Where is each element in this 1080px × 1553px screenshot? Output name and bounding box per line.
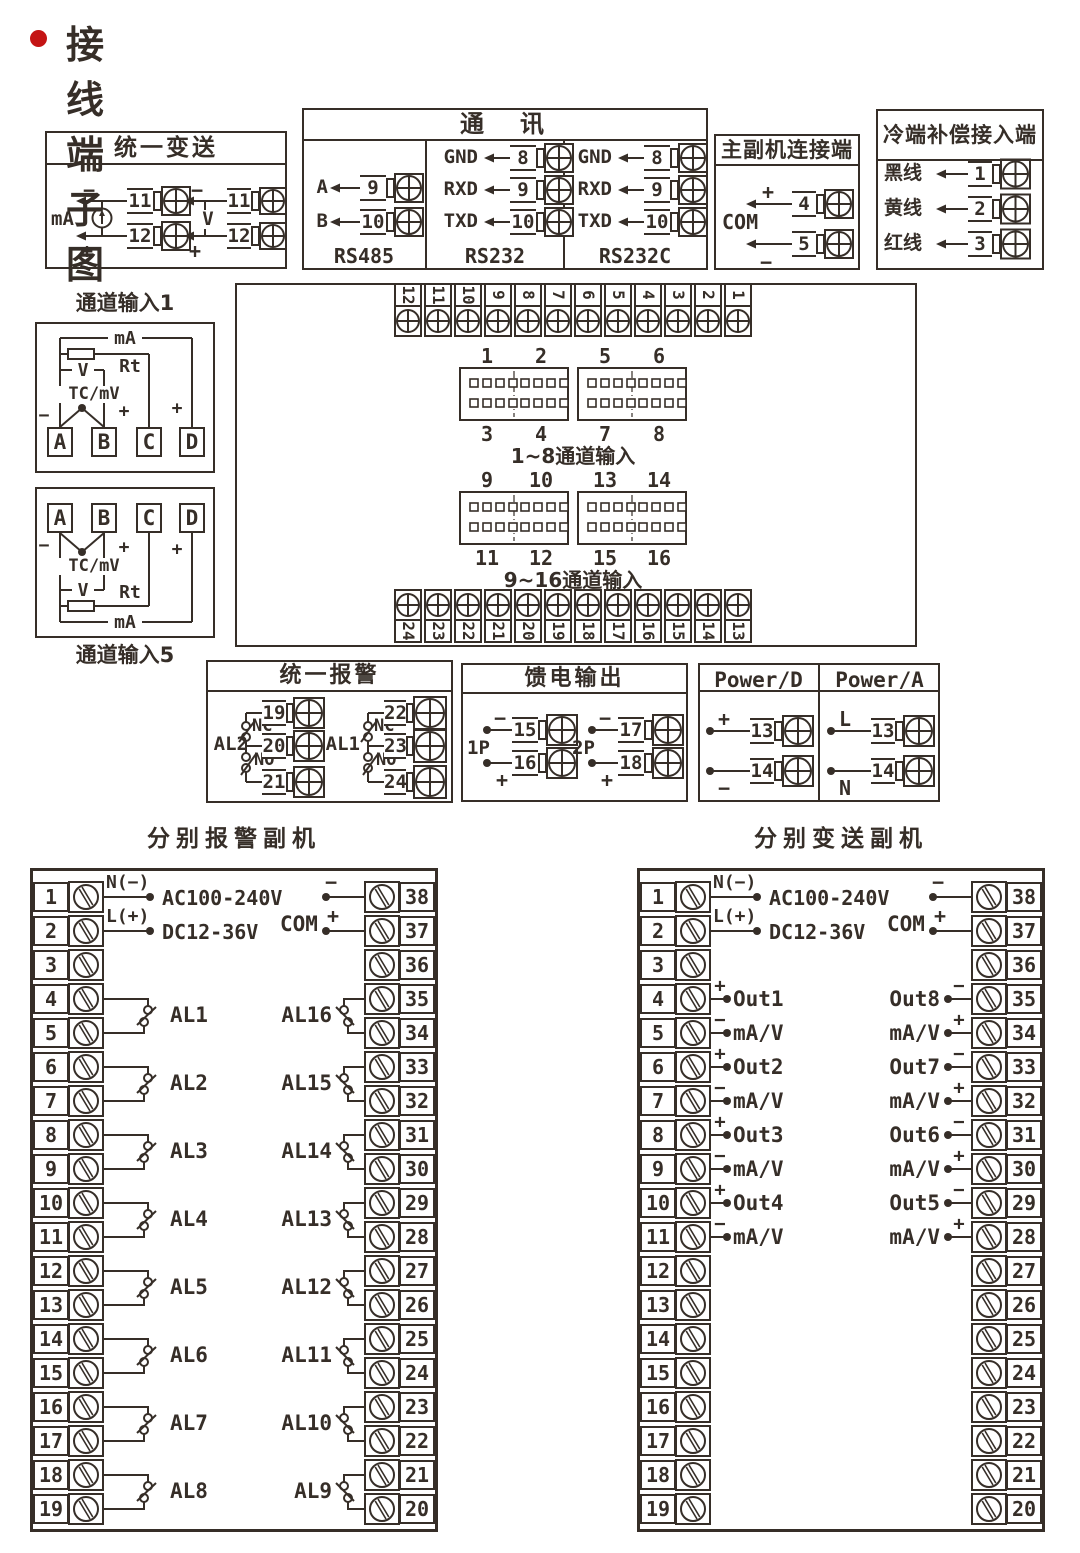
polarity-sign: − [950,1045,968,1064]
terminal-clamp [386,212,395,232]
supply-label: L(+) [713,908,771,926]
signal-label: V [72,582,94,600]
supply-rating: DC12-36V [769,922,865,942]
terminal-number: 15 [512,717,538,743]
polarity-sign: − [36,407,52,425]
terminal-number: 8 [517,282,539,308]
terminal-clamp [644,720,653,740]
signal-label: Rt [114,358,146,376]
terminal-number: 6 [577,282,599,308]
polarity-sign: − [711,1215,729,1234]
section-title: Power/A [819,670,940,691]
terminal-number: 25 [399,1324,435,1354]
output-label: Out4 [733,1193,807,1214]
output-label: Out8 [866,989,940,1010]
polarity-sign: − [80,180,98,200]
connector-number: 12 [514,548,568,568]
terminal-number: 20 [1006,1494,1042,1524]
terminal-number: A [47,427,73,457]
output-label: mA/V [866,1023,940,1044]
terminal-number: 34 [399,1018,435,1048]
terminal-number: 23 [427,618,449,644]
terminal-number: 10 [640,1188,676,1218]
relay-label: AL7 [170,1413,234,1434]
terminal-number: 2 [697,282,719,308]
terminal-number: 19 [640,1494,676,1524]
connector-number: 15 [578,548,632,568]
panel-title: 分别报警副机 [30,828,438,851]
polarity-sign: − [950,1113,968,1132]
terminal-number: 13 [33,1290,69,1320]
relay-label: AL10 [258,1413,332,1434]
terminal-number: 8 [644,145,670,171]
relay-label: AL5 [170,1277,234,1298]
terminal-number: 8 [33,1120,69,1150]
terminal-number: 2 [33,916,69,946]
terminal-number: 33 [399,1052,435,1082]
relay-label: AL13 [258,1209,332,1230]
polarity-sign: + [186,241,204,261]
terminal-clamp [774,761,783,781]
terminal-number: 13 [750,718,774,744]
terminal-number: 7 [547,282,569,308]
output-label: Out2 [733,1057,807,1078]
terminal-number: 18 [33,1460,69,1490]
terminal-number: 18 [618,750,644,776]
terminal-number: 10 [33,1188,69,1218]
polarity-sign: − [711,1147,729,1166]
section-title: 主副机连接端 [716,136,858,166]
terminal-number: 12 [227,223,251,249]
terminal-clamp [286,736,294,756]
terminal-number: 9 [360,175,386,201]
polarity-sign: − [36,537,52,555]
terminal-number: 1 [968,161,992,187]
terminal-number: 20 [262,733,286,759]
connector-number: 10 [514,470,568,490]
terminal-number: 3 [667,282,689,308]
terminal-number: 11 [427,282,449,308]
supply-rating: DC12-36V [162,922,258,942]
polarity-sign: + [950,1147,968,1166]
output-label: mA/V [866,1091,940,1112]
group-caption: 1~8通道输入 [390,446,756,466]
terminal-number: 10 [644,209,670,235]
polarity-sign: + [931,906,949,926]
polarity-sign: + [78,241,96,261]
supply-label: N(−) [713,874,771,892]
terminal-number: 7 [640,1086,676,1116]
polarity-sign: − [711,1011,729,1030]
terminal-number: 3 [640,950,676,980]
terminal-number: 4 [637,282,659,308]
polarity-sign: − [929,872,947,892]
connector-number: 8 [632,424,686,444]
wire-color-label: 黄线 [884,199,928,218]
terminal-number: 9 [640,1154,676,1184]
column-footer: RS485 [302,246,426,266]
terminal-clamp [536,148,545,168]
column-footer: RS232C [564,246,706,266]
output-label: mA/V [733,1091,807,1112]
connector-number: 3 [460,424,514,444]
group-caption: 9~16通道输入 [390,570,756,590]
polarity-sign: + [169,400,185,418]
signal-label: V [198,210,218,229]
terminal-number: 5 [607,282,629,308]
group-label: 1P [467,739,495,758]
polarity-sign: + [711,1113,729,1132]
terminal-number: 12 [127,223,153,249]
transmit_slave-panel [637,868,1045,1532]
terminal-clamp [406,736,414,756]
polarity-sign: + [950,1079,968,1098]
terminal-number: 30 [399,1154,435,1184]
polarity-sign: − [715,778,733,798]
output-label: mA/V [733,1023,807,1044]
signal-label: A [310,178,328,197]
terminal-number: 14 [750,758,774,784]
terminal-number: 16 [512,750,538,776]
section-title: 馈电输出 [463,665,686,694]
wiring-terminal-diagram: 接线端子图 统一变送−+mA1112−+V1112通 讯A9B10RS485GN… [0,0,1080,1553]
terminal-number: 18 [577,618,599,644]
terminal-clamp [992,199,1001,219]
output-label: Out3 [733,1125,807,1146]
terminal-number: 21 [487,618,509,644]
terminal-number: 8 [640,1120,676,1150]
terminal-clamp [644,753,653,773]
terminal-number: 14 [871,758,895,784]
polarity-sign: + [711,977,729,996]
relay-label: AL16 [258,1005,332,1026]
terminal-number: 36 [399,950,435,980]
terminal-number: D [179,427,205,457]
polarity-sign: − [950,977,968,996]
terminal-number: B [91,427,117,457]
connector-number: 7 [578,424,632,444]
polarity-sign: + [950,1011,968,1030]
terminal-number: 6 [640,1052,676,1082]
terminal-clamp [895,721,904,741]
terminal-number: 11 [227,188,251,214]
terminal-number: 21 [262,769,286,795]
terminal-number: 5 [792,231,816,257]
terminal-number: 11 [127,188,153,214]
terminal-clamp [153,191,162,211]
connector-number: 1 [460,346,514,366]
terminal-number: 16 [33,1392,69,1422]
polarity-sign: N [836,778,854,798]
polarity-sign: − [491,708,509,728]
signal-label: mA [108,330,142,348]
terminal-clamp [816,194,825,214]
master-slave-box: 主副机连接端 [714,134,860,270]
terminal-number: 31 [399,1120,435,1150]
terminal-number: 22 [457,618,479,644]
terminal-clamp [406,703,414,723]
terminal-number: 19 [33,1494,69,1524]
terminal-number: 22 [384,700,406,726]
polarity-sign: − [758,252,774,272]
polarity-sign: L [836,709,854,729]
connector-number: 14 [632,470,686,490]
output-label: Out6 [866,1125,940,1146]
terminal-clamp [153,226,162,246]
terminal-clamp [992,234,1001,254]
terminal-number: 19 [262,700,286,726]
signal-label: B [310,212,328,231]
terminal-number: 14 [640,1324,676,1354]
terminal-clamp [538,753,547,773]
terminal-clamp [536,180,545,200]
section-title: Power/D [698,670,819,691]
terminal-number: 38 [399,882,435,912]
terminal-number: 23 [384,733,406,759]
terminal-number: 8 [510,145,536,171]
terminal-number: 30 [1006,1154,1042,1184]
output-label: mA/V [733,1159,807,1180]
polarity-sign: − [322,872,340,892]
signal-label: GND [566,148,612,167]
terminal-number: 11 [640,1222,676,1252]
terminal-number: 29 [399,1188,435,1218]
terminal-number: 10 [360,209,386,235]
connector-number: 13 [578,470,632,490]
connector-number: 4 [514,424,568,444]
terminal-number: 37 [1006,916,1042,946]
supply-label: N(−) [106,874,164,892]
unified-alarm-box: 统一报警 [206,660,453,803]
terminal-clamp [286,772,294,792]
output-label: Out1 [733,989,807,1010]
terminal-number: 17 [640,1426,676,1456]
polarity-sign: + [116,539,132,557]
terminal-number: 32 [399,1086,435,1116]
polarity-sign: + [760,182,776,202]
terminal-number: 28 [399,1222,435,1252]
terminal-number: 7 [33,1086,69,1116]
polarity-sign: − [188,180,206,200]
terminal-number: 15 [667,618,689,644]
group-label: 2P [572,739,600,758]
output-label: mA/V [866,1159,940,1180]
terminal-number: 5 [640,1018,676,1048]
relay-label: AL15 [258,1073,332,1094]
terminal-number: 11 [33,1222,69,1252]
terminal-number: 27 [1006,1256,1042,1286]
terminal-number: 27 [399,1256,435,1286]
polarity-sign: + [711,1181,729,1200]
terminal-number: 25 [1006,1324,1042,1354]
terminal-number: D [179,503,205,533]
terminal-number: A [47,503,73,533]
relay-label: AL6 [170,1345,234,1366]
terminal-number: 1 [33,882,69,912]
polarity-sign: + [715,709,733,729]
polarity-sign: + [950,1215,968,1234]
terminal-number: B [91,503,117,533]
terminal-clamp [406,772,414,792]
terminal-number: 2 [968,196,992,222]
terminal-number: 9 [33,1154,69,1184]
terminal-number: 18 [640,1460,676,1490]
column-footer: RS232 [426,246,564,266]
terminal-number: 4 [792,191,816,217]
terminal-number: 10 [457,282,479,308]
relay-label: AL14 [258,1141,332,1162]
relay-label: AL8 [170,1481,234,1502]
terminal-number: 1 [640,882,676,912]
signal-label: mA [51,210,74,229]
terminal-clamp [286,703,294,723]
terminal-number: 36 [1006,950,1042,980]
terminal-number: 1 [727,282,749,308]
terminal-number: 24 [1006,1358,1042,1388]
terminal-number: 19 [547,618,569,644]
terminal-number: 35 [399,984,435,1014]
terminal-number: 38 [1006,882,1042,912]
terminal-clamp [670,180,679,200]
relay-label: AL2 [170,1073,234,1094]
terminal-number: 2 [640,916,676,946]
signal-label: TXD [432,212,478,231]
terminal-clamp [538,720,547,740]
signal-label: RXD [432,180,478,199]
output-label: Out5 [866,1193,940,1214]
section-title: 统一报警 [208,662,451,692]
red-bullet-icon [30,30,47,47]
terminal-number: C [136,427,162,457]
wire-color-label: 黑线 [884,164,928,183]
output-label: mA/V [866,1227,940,1248]
terminal-number: 12 [33,1256,69,1286]
terminal-number: 13 [640,1290,676,1320]
signal-label: COM [722,212,766,232]
connector-number: 11 [460,548,514,568]
signal-label: V [72,362,94,380]
alarm_slave-panel [30,868,438,1532]
terminal-number: 13 [727,618,749,644]
terminal-clamp [670,148,679,168]
supply-rating: AC100-240V [162,888,282,908]
terminal-number: 17 [618,717,644,743]
relay-label: AL9 [258,1481,332,1502]
signal-label: mA [108,614,142,632]
terminal-number: 24 [397,618,419,644]
signal-label: RXD [566,180,612,199]
terminal-number: 15 [33,1358,69,1388]
terminal-number: 20 [399,1494,435,1524]
terminal-number: 13 [871,718,895,744]
terminal-number: 17 [33,1426,69,1456]
terminal-number: 3 [968,231,992,257]
terminal-number: 10 [510,209,536,235]
terminal-number: 6 [33,1052,69,1082]
terminal-number: 9 [510,177,536,203]
terminal-clamp [251,226,260,246]
terminal-number: 33 [1006,1052,1042,1082]
relay-label: AL11 [258,1345,332,1366]
output-label: Out7 [866,1057,940,1078]
section-caption: 通道输入5 [35,645,215,666]
terminal-number: 37 [399,916,435,946]
terminal-clamp [386,178,395,198]
terminal-number: 9 [644,177,670,203]
terminal-number: 26 [1006,1290,1042,1320]
polarity-sign: + [598,770,616,790]
connector-number: 6 [632,346,686,366]
terminal-number: 24 [384,769,406,795]
connector-number: 5 [578,346,632,366]
terminal-number: C [136,503,162,533]
connector-number: 2 [514,346,568,366]
connector-number: 9 [460,470,514,490]
relay-label: AL1 [170,1005,234,1026]
terminal-number: 14 [33,1324,69,1354]
terminal-clamp [992,164,1001,184]
terminal-number: 17 [607,618,629,644]
relay-label: AL12 [258,1277,332,1298]
terminal-number: 21 [399,1460,435,1490]
signal-label: TC/mV [59,558,129,575]
polarity-sign: − [596,708,614,728]
section-caption: 通道输入1 [35,293,215,314]
terminal-number: 4 [640,984,676,1014]
section-title: 通 讯 [304,110,706,141]
relay-label: AL4 [170,1209,234,1230]
terminal-clamp [774,721,783,741]
terminal-number: 23 [1006,1392,1042,1422]
connector-number: 16 [632,548,686,568]
terminal-number: 4 [33,984,69,1014]
supply-label: L(+) [106,908,164,926]
polarity-sign: + [493,770,511,790]
terminal-number: 23 [399,1392,435,1422]
terminal-number: 29 [1006,1188,1042,1218]
terminal-number: 32 [1006,1086,1042,1116]
terminal-number: 24 [399,1358,435,1388]
wire-color-label: 红线 [884,234,928,253]
polarity-sign: − [950,1181,968,1200]
terminal-number: 5 [33,1018,69,1048]
signal-label: Rt [114,584,146,602]
terminal-number: 22 [1006,1426,1042,1456]
terminal-number: 16 [637,618,659,644]
relay-label: AL2 [210,735,248,754]
output-label: mA/V [733,1227,807,1248]
polarity-sign: + [711,1045,729,1064]
terminal-number: 34 [1006,1018,1042,1048]
supply-rating: AC100-240V [769,888,889,908]
terminal-number: 12 [640,1256,676,1286]
polarity-sign: + [116,403,132,421]
terminal-number: 12 [397,282,419,308]
section-title: 统一变送 [47,133,285,165]
section-title: 冷端补偿接入端 [878,111,1042,161]
terminal-clamp [251,191,260,211]
terminal-number: 20 [517,618,539,644]
polarity-sign: + [324,906,342,926]
terminal-number: 16 [640,1392,676,1422]
terminal-number: 28 [1006,1222,1042,1252]
signal-label: TXD [566,212,612,231]
terminal-number: 26 [399,1290,435,1320]
terminal-number: 31 [1006,1120,1042,1150]
terminal-number: 35 [1006,984,1042,1014]
terminal-number: 3 [33,950,69,980]
terminal-number: 15 [640,1358,676,1388]
